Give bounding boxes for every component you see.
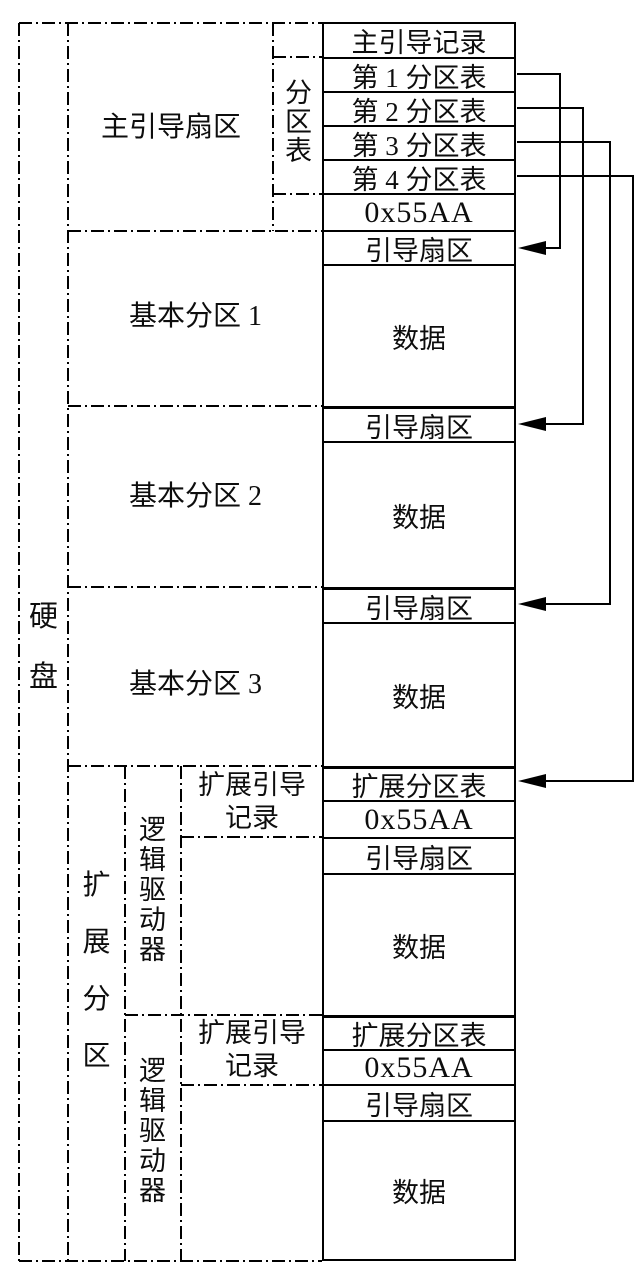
row-label: 引导扇区 [365,837,473,876]
logical-drive-2-label: 逻辑驱动器 [137,1056,168,1206]
row-partition-entry-2: 第 2 分区表 [322,91,516,125]
row-boot-sector-5: 引导扇区 [322,1084,516,1120]
extended-boot-record-2-label: 扩展引导 记录 [182,1015,322,1085]
row-boot-sector-1: 引导扇区 [322,230,516,264]
partition-table-label: 分区表 [283,79,314,166]
row-signature-0x55aa-2: 0x55AA [322,800,516,837]
row-label: 0x55AA [364,1051,473,1085]
row-data-2: 数据 [322,441,516,587]
arrowhead-3 [518,597,546,611]
row-extended-partition-table-1: 扩展分区表 [322,766,516,800]
row-label: 0x55AA [364,803,473,837]
row-label: 数据 [392,676,446,715]
row-boot-sector-4: 引导扇区 [322,837,516,873]
row-partition-entry-1: 第 1 分区表 [322,57,516,91]
arrow-entry4-to-ebr [517,176,633,781]
row-label: 数据 [392,926,446,965]
diagram-lines [0,0,640,1280]
row-partition-entry-4: 第 4 分区表 [322,159,516,193]
row-label: 第 4 分区表 [352,158,487,197]
row-data-5: 数据 [322,1120,516,1261]
logical-drive-1-label: 逻辑驱动器 [137,815,168,965]
row-label: 引导扇区 [365,1084,473,1123]
row-data-4: 数据 [322,873,516,1015]
primary-partition-1-label: 基本分区 1 [69,301,322,333]
row-label: 引导扇区 [365,587,473,626]
row-label: 扩展分区表 [352,765,487,804]
arrow-entry1-to-boot1 [517,74,560,248]
sector-table: 主引导记录 第 1 分区表 第 2 分区表 第 3 分区表 第 4 分区表 0x… [322,22,516,1261]
row-label: 数据 [392,1171,446,1210]
primary-partition-2-label: 基本分区 2 [69,481,322,513]
row-extended-partition-table-2: 扩展分区表 [322,1015,516,1049]
disk-label: 硬盘 [28,587,59,707]
row-label: 扩展分区表 [352,1014,487,1053]
arrowhead-4 [518,774,546,788]
arrowhead-2 [518,417,546,431]
mbr-sector-label: 主引导扇区 [69,112,273,144]
row-label: 数据 [392,496,446,535]
arrowheads [518,241,546,788]
row-label: 引导扇区 [365,406,473,445]
row-label: 引导扇区 [365,229,473,268]
row-signature-0x55aa-1: 0x55AA [322,193,516,230]
arrowhead-1 [518,241,546,255]
arrow-entry2-to-boot2 [517,108,583,424]
row-data-3: 数据 [322,622,516,766]
row-boot-sector-3: 引导扇区 [322,587,516,622]
row-data-1: 数据 [322,264,516,406]
primary-partition-3-label: 基本分区 3 [69,669,322,701]
mbr-partition-diagram: 硬盘 分区表 扩展分区 逻辑驱动器 逻辑驱动器 主引导扇区 基本分区 1 基本分… [0,0,640,1280]
row-master-boot-record: 主引导记录 [322,22,516,57]
row-label: 0x55AA [364,196,473,230]
row-signature-0x55aa-3: 0x55AA [322,1049,516,1084]
row-boot-sector-2: 引导扇区 [322,406,516,441]
row-label: 主引导记录 [352,21,487,60]
extended-boot-record-1-label: 扩展引导 记录 [182,766,322,837]
extended-partition-label: 扩展分区 [81,857,112,1085]
row-partition-entry-3: 第 3 分区表 [322,125,516,159]
row-label: 数据 [392,317,446,356]
arrow-entry3-to-boot3 [517,142,610,604]
